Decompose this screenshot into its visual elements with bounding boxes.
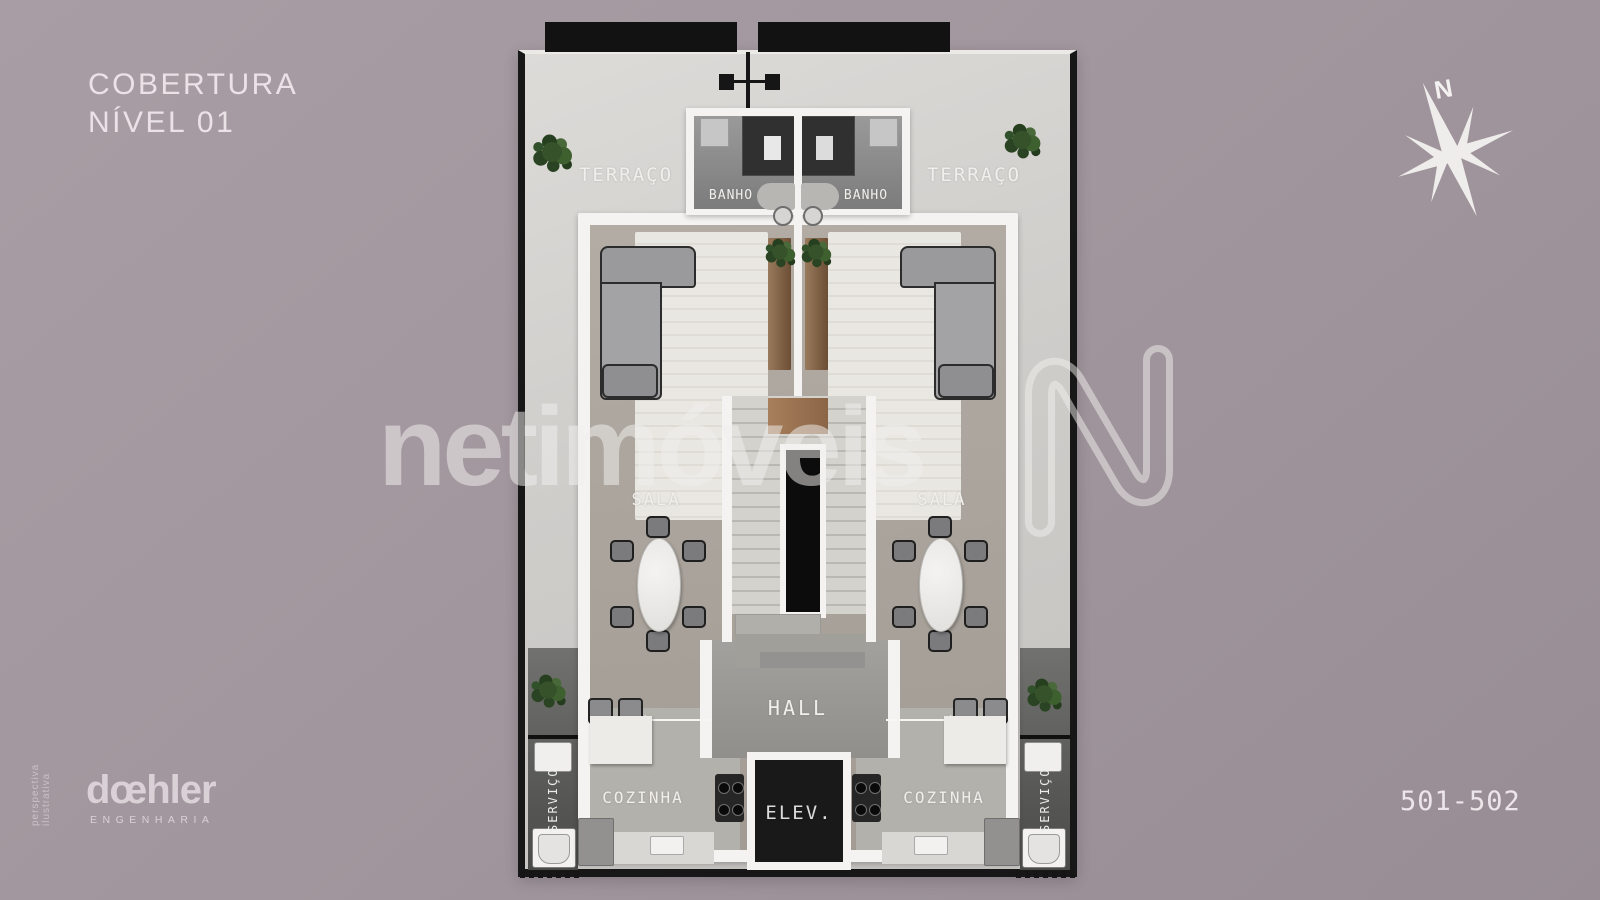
dining-table-right <box>919 538 963 632</box>
compass-north-label: N <box>1432 74 1455 105</box>
room-label-kitchen-right: COZINHA <box>893 788 995 807</box>
service-wall-left <box>528 735 578 739</box>
light-fixture-right <box>765 74 780 90</box>
room-label-kitchen-left: COZINHA <box>592 788 694 807</box>
chair <box>928 516 952 538</box>
toilet-right <box>803 206 823 226</box>
burner <box>855 782 867 794</box>
dining-table-left <box>637 538 681 632</box>
service-wall-right <box>1020 735 1070 739</box>
burner <box>869 782 881 794</box>
disclaimer-vertical: perspectiva ilustrativa <box>30 710 52 826</box>
room-label-bath-left: BANHO <box>696 188 766 203</box>
burner <box>855 804 867 816</box>
room-label-service-left: SERVIÇO <box>541 764 565 836</box>
sofa-right-cushion <box>938 364 994 398</box>
kitchen-sink-right <box>914 836 948 855</box>
chair <box>964 606 988 628</box>
room-label-hall: HALL <box>748 696 848 720</box>
door-swing-right <box>886 719 950 721</box>
kitchen-sink-left <box>650 836 684 855</box>
page-title-line1: COBERTURA <box>88 66 298 104</box>
light-fixture-bar <box>728 80 770 83</box>
burner <box>732 804 744 816</box>
roof-block-left <box>545 22 737 52</box>
burner <box>869 804 881 816</box>
fridge-right <box>984 818 1020 866</box>
bottom-hatch-right <box>1016 871 1078 878</box>
shower-head-unit-right <box>869 118 898 147</box>
plant <box>539 681 557 699</box>
room-label-service-right: SERVIÇO <box>1033 764 1057 836</box>
plant <box>1013 131 1031 149</box>
shower-head-unit-left <box>700 118 729 147</box>
room-label-terrace-right: TERRAÇO <box>914 164 1034 186</box>
washing-machine-left-door <box>538 834 570 864</box>
chair <box>964 540 988 562</box>
chair <box>892 540 916 562</box>
chair <box>610 540 634 562</box>
burner <box>718 804 730 816</box>
watermark-brand: netimóveis <box>378 382 923 511</box>
door-swing-left <box>646 719 710 721</box>
kitchen-counter-right <box>944 716 1006 764</box>
plant <box>808 244 823 259</box>
chair <box>682 540 706 562</box>
chair <box>646 630 670 652</box>
chair <box>928 630 952 652</box>
plant <box>1035 685 1053 703</box>
burner <box>732 782 744 794</box>
engineering-logo-sub: ENGENHARIA <box>90 814 214 826</box>
chair <box>610 606 634 628</box>
chair <box>892 606 916 628</box>
compass-icon: N <box>1380 55 1540 245</box>
floorplan-page: COBERTURA NÍVEL 01 <box>0 0 1600 900</box>
shower-bench-right <box>816 136 833 160</box>
light-fixture-left <box>719 74 734 90</box>
room-label-elevator: ELEV. <box>749 802 849 824</box>
chair <box>682 606 706 628</box>
engineering-logo: dœhler <box>86 768 216 813</box>
roof-block-right <box>758 22 950 52</box>
unit-number: 501-502 <box>1400 786 1540 817</box>
kitchen-counter-left <box>590 716 652 764</box>
washing-machine-right-door <box>1028 834 1060 864</box>
bottom-hatch-left <box>520 871 582 878</box>
hall-wall-left <box>700 640 712 758</box>
burner <box>718 782 730 794</box>
plant <box>772 244 787 259</box>
hall-step-3 <box>760 652 865 668</box>
room-label-terrace-left: TERRAÇO <box>566 164 686 186</box>
room-label-bath-right: BANHO <box>831 188 901 203</box>
fridge-left <box>578 818 614 866</box>
plant <box>542 142 562 162</box>
chair <box>646 516 670 538</box>
toilet-left <box>773 206 793 226</box>
page-title: COBERTURA NÍVEL 01 <box>88 66 298 142</box>
page-title-line2: NÍVEL 01 <box>88 104 298 142</box>
hall-wall-right <box>888 640 900 758</box>
watermark-n-logo-icon <box>1000 330 1210 540</box>
shower-bench-left <box>764 136 781 160</box>
